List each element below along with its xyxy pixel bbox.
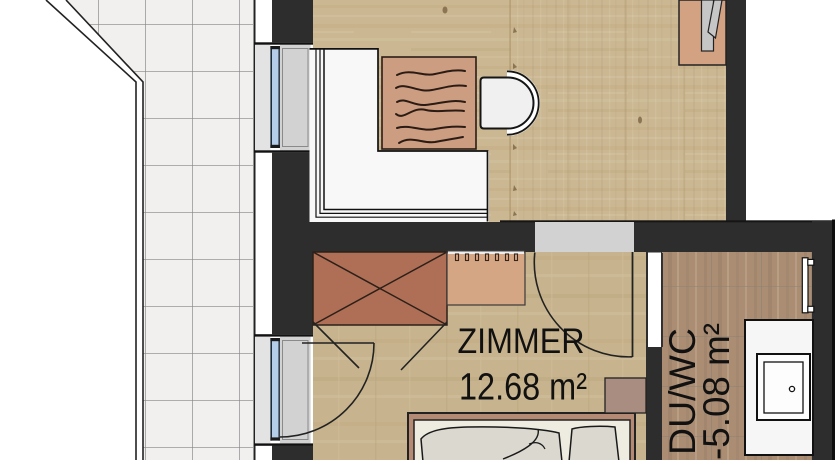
svg-text:-5.08 m²: -5.08 m²: [696, 323, 737, 460]
svg-text:ZIMMER: ZIMMER: [458, 322, 585, 361]
svg-text:12.68 m²: 12.68 m²: [459, 367, 587, 409]
